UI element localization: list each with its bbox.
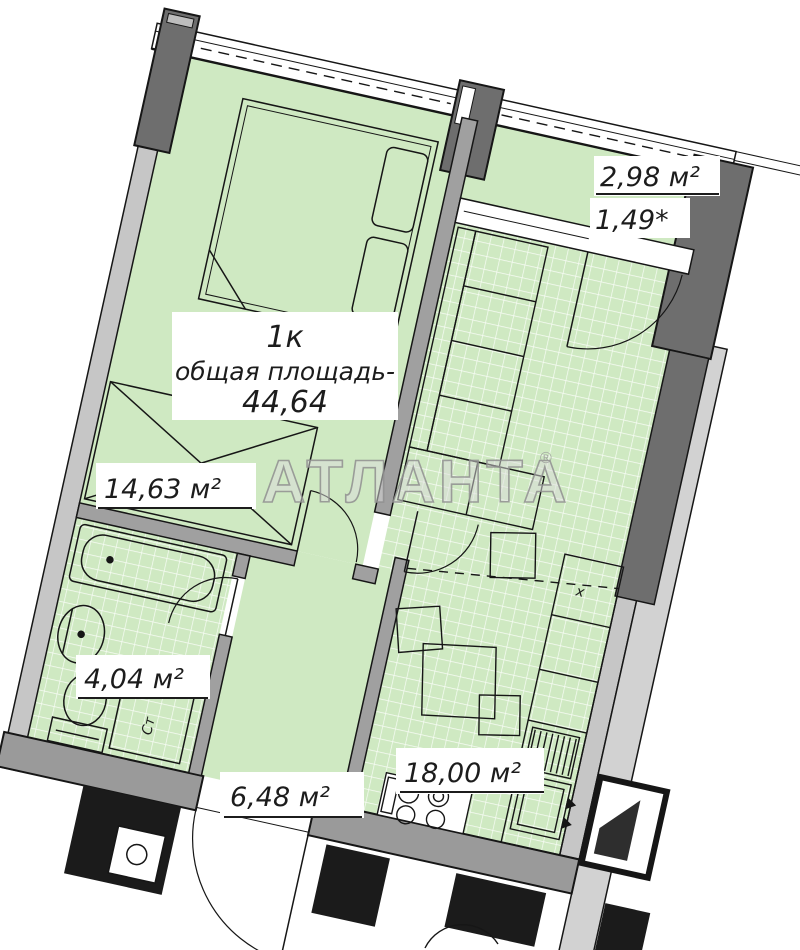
title-block: 1к общая площадь- 44,64: [172, 312, 398, 420]
svg-text:18,00 м²: 18,00 м²: [404, 758, 521, 789]
bedroom-area-label: 14,63 м²: [96, 463, 256, 509]
shaft-window-frame: [581, 777, 666, 878]
watermark-registered-sign: ®: [540, 450, 552, 467]
svg-text:14,63 м²: 14,63 м²: [104, 474, 221, 505]
svg-text:6,48 м²: 6,48 м²: [230, 782, 330, 813]
total-area-caption: общая площадь-: [175, 357, 395, 386]
hallway-area-label: 6,48 м²: [220, 772, 364, 818]
apartment-type-label: 1к: [266, 320, 303, 355]
watermark: АТЛАНТА ®: [262, 448, 570, 515]
floor-plan-page: Ст x АТЛАНТА: [0, 0, 800, 950]
svg-text:2,98 м²: 2,98 м²: [600, 162, 700, 193]
svg-text:4,04 м²: 4,04 м²: [84, 664, 184, 695]
bathroom-area-label: 4,04 м²: [76, 655, 210, 699]
total-area-value: 44,64: [242, 385, 328, 420]
watermark-text: АТЛАНТА: [262, 448, 570, 515]
balcony-reduced-area-label: 1,49*: [595, 205, 669, 236]
kitchen-living-area-label: 18,00 м²: [396, 748, 544, 794]
floor-plan-drawing: Ст x АТЛАНТА: [0, 0, 800, 950]
entrance-door-leaf: [280, 835, 308, 950]
